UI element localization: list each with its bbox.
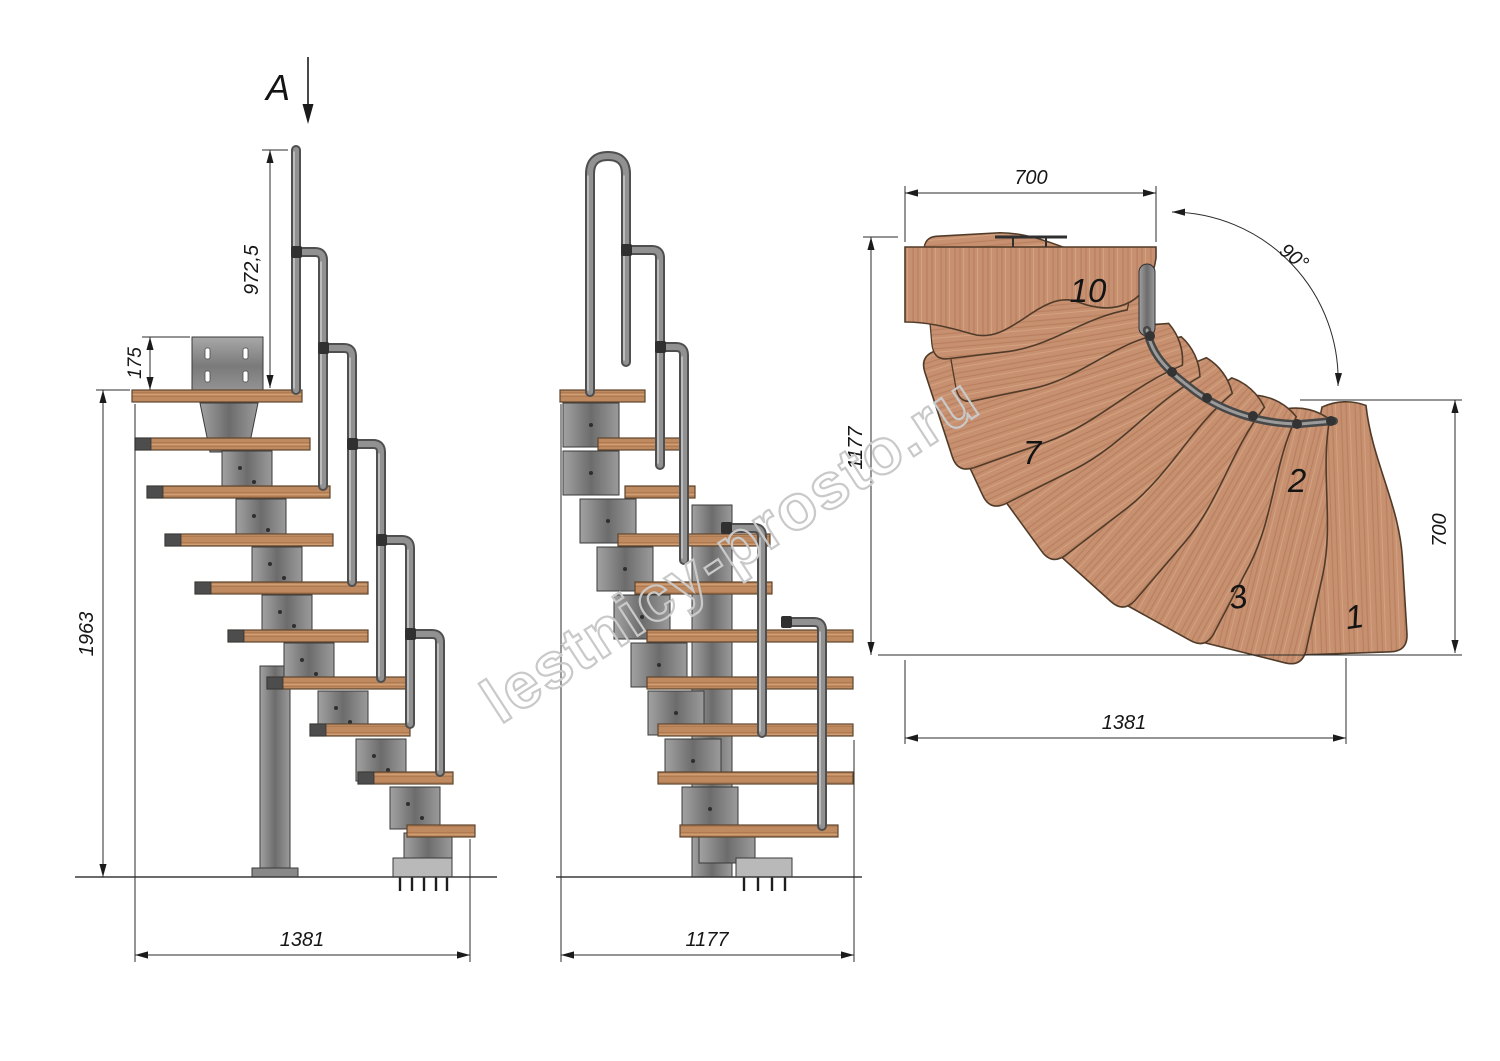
dim-landing-width: 700 (1014, 167, 1047, 189)
technical-drawing-page: A (0, 0, 1500, 1061)
dim-handrail-height: 972,5 (241, 244, 263, 295)
plan-tread-label-2: 2 (1287, 462, 1306, 499)
dim-turn-angle: 90° (1275, 239, 1312, 275)
section-marker-label: A (264, 67, 290, 108)
dim-front-base-width: 1177 (685, 929, 729, 951)
base-plate (393, 858, 452, 891)
dim-plan-overall-length: 1381 (1102, 712, 1147, 734)
plan-tread-label-7: 7 (1023, 434, 1043, 471)
wall-bracket (192, 337, 263, 390)
side-view: A (75, 57, 497, 962)
support-column (260, 666, 290, 877)
dim-side-base-length: 1381 (280, 929, 325, 951)
column-foot (252, 868, 298, 877)
front-base-plate (736, 858, 792, 891)
section-arrow-icon (303, 57, 314, 124)
dim-total-height: 1963 (76, 612, 98, 657)
plan-tread-label-10: 10 (1070, 272, 1107, 309)
staircase-drawing: A (0, 0, 1500, 1061)
dim-plan-right-depth: 700 (1429, 513, 1451, 546)
dim-bracket-offset: 175 (125, 347, 146, 379)
